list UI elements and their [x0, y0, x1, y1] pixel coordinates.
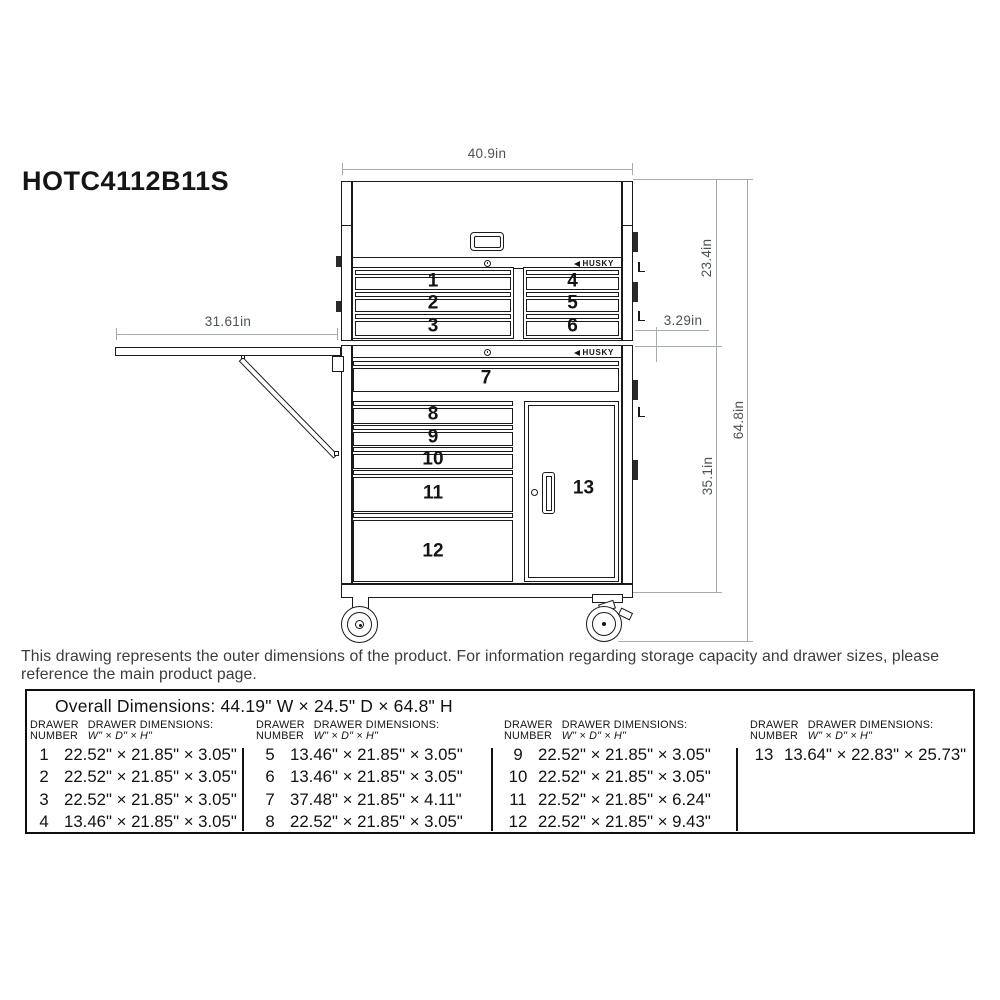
cabinet-left-post: [341, 345, 352, 584]
drawer-number-cell: 10: [504, 767, 532, 787]
group-header: DRAWERNUMBER DRAWER DIMENSIONS:W" × D" ×…: [504, 720, 734, 744]
drawer-7: 7: [353, 361, 619, 392]
drawer-number-cell: 7: [256, 790, 284, 810]
brace-hinge: [241, 355, 245, 359]
drawer-number-cell: 2: [30, 767, 58, 787]
dim-label-total-height: 64.8in: [732, 388, 746, 452]
dim-tick: [652, 346, 661, 347]
extension-line: [618, 641, 749, 642]
drawer-dims-cell: 13.46" × 21.85" × 3.05": [64, 812, 237, 832]
col-header: W" × D" × H": [808, 731, 934, 742]
drawer-11: 11: [353, 470, 513, 512]
extension-line: [633, 592, 718, 593]
drawer-label: 6: [526, 317, 619, 336]
overall-dimensions: Overall Dimensions: 44.19" W × 24.5" D ×…: [55, 696, 453, 717]
table-row: 322.52" × 21.85" × 3.05": [30, 789, 242, 811]
drawer-1: 1: [355, 270, 511, 290]
drawer-dims-cell: 22.52" × 21.85" × 3.05": [538, 745, 711, 765]
side-hook: [638, 320, 645, 322]
dim-label-bottom-unit-height: 35.1in: [701, 444, 715, 508]
extension-line: [635, 346, 718, 347]
table-row: 1122.52" × 21.85" × 6.24": [504, 789, 734, 811]
table-group-3: DRAWERNUMBER DRAWER DIMENSIONS:W" × D" ×…: [504, 720, 734, 833]
table-divider: [242, 748, 244, 831]
drawer-10: 10: [353, 447, 513, 469]
group-header: DRAWERNUMBER DRAWER DIMENSIONS:W" × D" ×…: [750, 720, 973, 744]
husky-arrow-icon: [574, 350, 580, 356]
side-clip: [633, 232, 638, 252]
drawer-number-cell: 12: [504, 812, 532, 832]
table-row: 822.52" × 21.85" × 3.05": [256, 811, 488, 833]
disclaimer-text: This drawing represents the outer dimens…: [21, 648, 983, 684]
brace-hinge: [334, 451, 339, 456]
dim-tick: [652, 330, 661, 331]
side-clip: [336, 301, 341, 312]
col-header: W" × D" × H": [314, 731, 440, 742]
drawer-label: 2: [355, 294, 511, 313]
dim-line: [747, 179, 748, 642]
col-header: NUMBER: [504, 731, 553, 742]
spec-sheet: HOTC4112B11S 40.9in HUSKY 1 2 3: [0, 0, 1000, 1000]
drawer-label: 4: [526, 272, 619, 291]
husky-arrow-icon: [574, 261, 580, 267]
top-chest-right-post: [622, 181, 633, 341]
drawer-dims-cell: 22.52" × 21.85" × 3.05": [64, 745, 237, 765]
drawer-dims-cell: 22.52" × 21.85" × 9.43": [538, 812, 711, 832]
table-group-2: DRAWERNUMBER DRAWER DIMENSIONS:W" × D" ×…: [256, 720, 488, 833]
side-clip: [633, 282, 638, 302]
left-caster-axle: [359, 624, 362, 627]
cabinet-right-post: [622, 345, 633, 584]
drawer-9: 9: [353, 425, 513, 446]
drawer-number-cell: 1: [30, 745, 58, 765]
table-divider: [736, 748, 738, 831]
shelf-support-brace: [239, 357, 338, 458]
husky-wordmark: HUSKY: [582, 348, 614, 357]
shelf-mount-bracket: [332, 356, 344, 372]
cabinet-base: [341, 584, 633, 598]
side-hook: [638, 271, 645, 273]
husky-logo: HUSKY: [574, 348, 614, 357]
dim-label-top-unit-height: 23.4in: [700, 226, 714, 290]
drawer-12: 12: [353, 513, 513, 582]
dim-line: [656, 327, 657, 362]
dimensions-table: Overall Dimensions: 44.19" W × 24.5" D ×…: [25, 689, 975, 834]
side-clip: [633, 460, 638, 480]
group-header: DRAWERNUMBER DRAWER DIMENSIONS:W" × D" ×…: [256, 720, 488, 744]
drawer-dims-cell: 37.48" × 21.85" × 4.11": [290, 790, 462, 810]
dim-line: [716, 347, 717, 593]
drawer-number-cell: 11: [504, 790, 532, 810]
drawer-dims-cell: 22.52" × 21.85" × 6.24": [538, 790, 711, 810]
drawer-6: 6: [526, 314, 619, 336]
dim-label-stack-gap: 3.29in: [654, 314, 712, 328]
drawer-3: 3: [355, 314, 511, 336]
drawer-number-cell: 4: [30, 812, 58, 832]
dim-tick: [337, 328, 338, 340]
dim-tick: [710, 179, 722, 180]
drawer-dims-cell: 22.52" × 21.85" × 3.05": [290, 812, 463, 832]
drawer-dims-cell: 22.52" × 21.85" × 3.05": [64, 790, 237, 810]
folding-shelf: [115, 347, 341, 356]
drawer-number-cell: 5: [256, 745, 284, 765]
drawer-number-cell: 3: [30, 790, 58, 810]
drawer-label: 9: [353, 427, 513, 446]
drawer-2: 2: [355, 292, 511, 312]
side-clip: [633, 380, 638, 400]
drawer-label: 12: [353, 541, 513, 560]
col-header: NUMBER: [256, 731, 305, 742]
drawer-dims-cell: 13.46" × 21.85" × 3.05": [290, 767, 463, 787]
drawer-slide: [353, 513, 513, 518]
table-group-4: DRAWERNUMBER DRAWER DIMENSIONS:W" × D" ×…: [750, 720, 973, 766]
drawer-slide: [353, 470, 513, 475]
table-divider: [491, 748, 493, 831]
top-chest-left-post: [341, 181, 352, 341]
dim-tick: [116, 328, 117, 340]
table-row: 737.48" × 21.85" × 4.11": [256, 789, 488, 811]
drawer-slide: [353, 361, 619, 366]
col-header: NUMBER: [750, 731, 799, 742]
drawer-number-cell: 9: [504, 745, 532, 765]
table-group-1: DRAWERNUMBER DRAWER DIMENSIONS:W" × D" ×…: [30, 720, 242, 833]
cabinet-rail: HUSKY: [352, 345, 622, 358]
col-header: W" × D" × H": [88, 731, 214, 742]
side-clip: [336, 256, 341, 267]
drawer-dims-cell: 13.64" × 22.83" × 25.73": [784, 745, 966, 765]
dim-line: [716, 179, 717, 347]
lid-handle: [470, 232, 504, 251]
drawer-label: 8: [353, 404, 513, 423]
dim-label-shelf-width: 31.61in: [194, 315, 262, 329]
post-seam: [623, 225, 632, 226]
drawer-label: 5: [526, 294, 619, 313]
side-door: 13: [524, 401, 619, 582]
drawer-dims-cell: 22.52" × 21.85" × 3.05": [64, 767, 237, 787]
col-header: W" × D" × H": [562, 731, 688, 742]
col-header: NUMBER: [30, 731, 79, 742]
table-row: 1022.52" × 21.85" × 3.05": [504, 766, 734, 788]
dim-label-top-width: 40.9in: [455, 147, 519, 161]
side-hook: [638, 416, 645, 418]
drawer-number-cell: 13: [750, 745, 778, 765]
door-lock-icon: [531, 489, 538, 496]
extension-line: [635, 330, 709, 331]
drawer-number-cell: 6: [256, 767, 284, 787]
table-row: 413.46" × 21.85" × 3.05": [30, 811, 242, 833]
door-label: 13: [549, 478, 618, 497]
group-header: DRAWERNUMBER DRAWER DIMENSIONS:W" × D" ×…: [30, 720, 242, 744]
dim-tick: [741, 179, 753, 180]
table-row: 613.46" × 21.85" × 3.05": [256, 766, 488, 788]
drawer-number-cell: 8: [256, 812, 284, 832]
lid-handle-inner: [474, 236, 501, 248]
drawer-label: 7: [353, 369, 619, 388]
dim-line: [116, 334, 338, 335]
dim-tick: [632, 163, 633, 175]
drawer-label: 10: [353, 450, 513, 469]
model-number: HOTC4112B11S: [22, 166, 229, 197]
right-caster-axle: [602, 622, 606, 626]
table-row: 222.52" × 21.85" × 3.05": [30, 766, 242, 788]
drawer-dims-cell: 22.52" × 21.85" × 3.05": [538, 767, 711, 787]
table-row: 513.46" × 21.85" × 3.05": [256, 744, 488, 766]
drawer-4: 4: [526, 270, 619, 290]
drawer-5: 5: [526, 292, 619, 312]
drawer-label: 3: [355, 317, 511, 336]
dim-line: [342, 169, 632, 170]
dim-tick: [342, 163, 343, 175]
table-row: 1222.52" × 21.85" × 9.43": [504, 811, 734, 833]
table-row: 122.52" × 21.85" × 3.05": [30, 744, 242, 766]
drawer-8: 8: [353, 401, 513, 424]
drawer-label: 11: [353, 484, 513, 503]
extension-line: [633, 179, 750, 180]
table-row: 922.52" × 21.85" × 3.05": [504, 744, 734, 766]
post-seam: [342, 225, 351, 226]
drawer-dims-cell: 13.46" × 21.85" × 3.05": [290, 745, 463, 765]
drawer-label: 1: [355, 272, 511, 291]
table-row: 1313.64" × 22.83" × 25.73": [750, 744, 973, 766]
